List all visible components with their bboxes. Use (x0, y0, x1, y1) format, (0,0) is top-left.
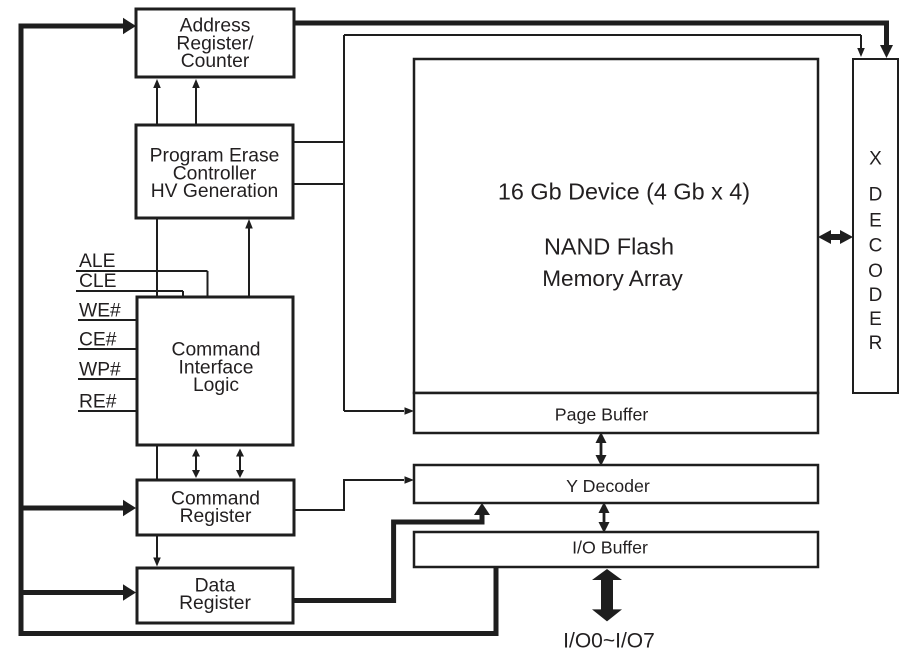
svg-text:Y Decoder: Y Decoder (566, 476, 650, 496)
svg-text:I/O0~I/O7: I/O0~I/O7 (563, 630, 655, 653)
svg-text:D: D (869, 185, 883, 206)
svg-text:Register: Register (179, 593, 251, 614)
svg-text:WP#: WP# (79, 360, 121, 381)
svg-text:CLE: CLE (79, 271, 117, 292)
svg-text:E: E (869, 309, 882, 330)
svg-text:Logic: Logic (193, 375, 239, 396)
svg-text:ALE: ALE (79, 251, 116, 272)
svg-text:16 Gb Device (4 Gb x 4): 16 Gb Device (4 Gb x 4) (498, 179, 750, 205)
svg-text:D: D (869, 285, 883, 306)
svg-text:Page Buffer: Page Buffer (555, 405, 649, 425)
svg-text:Memory Array: Memory Array (542, 266, 683, 291)
svg-text:I/O Buffer: I/O Buffer (572, 538, 648, 558)
svg-text:E: E (869, 211, 882, 232)
svg-text:HV Generation: HV Generation (151, 181, 279, 202)
svg-text:O: O (868, 261, 883, 282)
svg-text:WE#: WE# (79, 301, 121, 322)
svg-text:Counter: Counter (181, 51, 250, 72)
svg-text:CE#: CE# (79, 330, 117, 351)
svg-text:C: C (869, 236, 883, 257)
svg-text:X: X (869, 149, 882, 170)
svg-text:RE#: RE# (79, 392, 117, 413)
svg-text:Register: Register (180, 506, 252, 527)
svg-text:NAND Flash: NAND Flash (544, 234, 674, 260)
svg-text:R: R (869, 333, 883, 354)
